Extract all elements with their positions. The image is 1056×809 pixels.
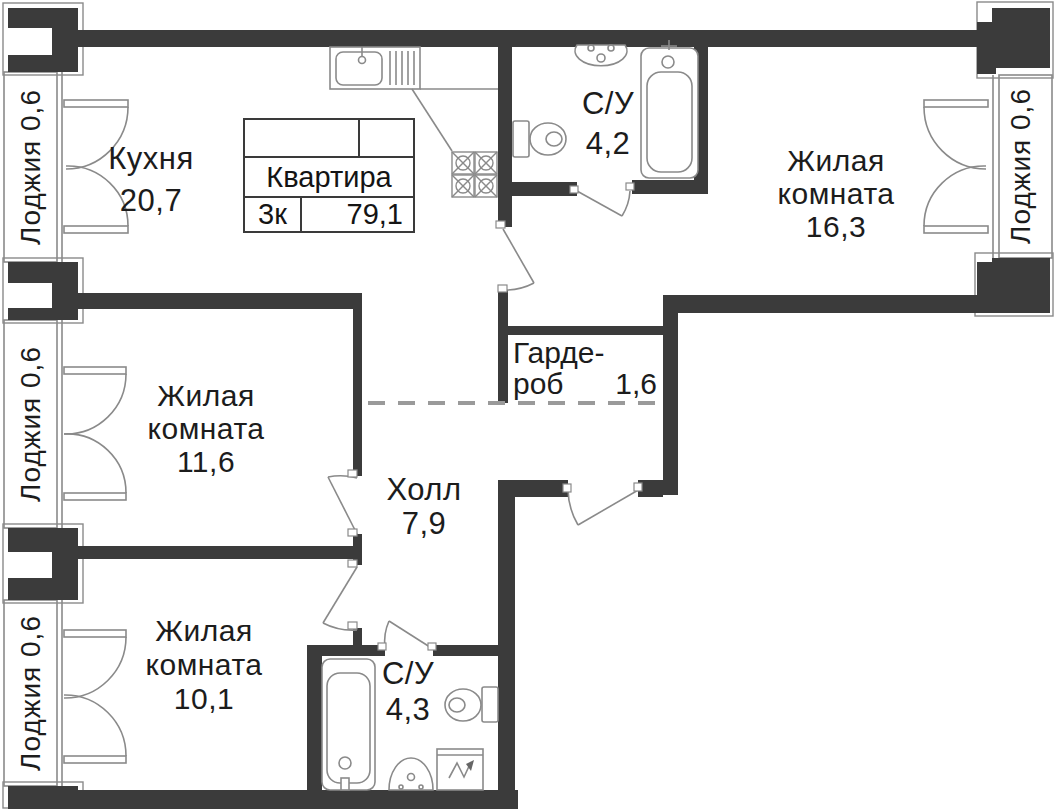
- info-table-bottom-row: 3к 79,1: [245, 198, 413, 231]
- wardrobe-area: 1,6: [615, 368, 657, 399]
- stove-icon: [452, 152, 497, 197]
- floor-plan-page: Квартира 3к 79,1 Кухня 20,7 С/У 4,2 Жила…: [0, 0, 1056, 809]
- room-label-bathroom-top: С/У 4,2: [582, 84, 634, 164]
- bathroom-bottom-area: 4,3: [382, 692, 434, 728]
- apartment-rooms-count: 3к: [245, 198, 302, 231]
- door-hinges: [348, 183, 642, 650]
- apartment-info-table: Квартира 3к 79,1: [243, 118, 415, 233]
- loggia-label-right: Лоджия 0,6: [1005, 88, 1037, 244]
- room-label-wardrobe: Гарде- роб 1,6: [513, 337, 657, 399]
- hall-name: Холл: [386, 473, 461, 507]
- living-bottom-name-1: Жилая: [146, 614, 263, 648]
- living-middle-name-1: Жилая: [148, 379, 265, 412]
- bathroom-top-area: 4,2: [582, 124, 634, 164]
- apartment-title: Квартира: [245, 158, 413, 198]
- interior-doors: [323, 191, 640, 649]
- loggia-label-top-left: Лоджия 0,6: [15, 89, 47, 245]
- bathroom-top-name: С/У: [582, 84, 634, 124]
- wardrobe-name-2: роб: [513, 368, 564, 399]
- room-label-living-right: Жилая комната 16,3: [778, 144, 895, 243]
- loggia-label-bottom-left: Лоджия 0,6: [15, 615, 47, 771]
- info-table-empty-cell-right: [360, 120, 413, 156]
- living-right-name-2: комната: [778, 177, 895, 210]
- info-table-empty-cell-left: [245, 120, 360, 156]
- room-label-bathroom-bottom: С/У 4,3: [382, 656, 434, 728]
- living-right-area: 16,3: [778, 210, 895, 243]
- living-bottom-name-2: комната: [146, 648, 263, 682]
- living-right-name-1: Жилая: [778, 144, 895, 177]
- hall-area: 7,9: [386, 507, 461, 541]
- loggia-label-middle-left: Лоджия 0,6: [15, 346, 47, 502]
- kitchen-name: Кухня: [108, 138, 193, 180]
- bathroom-bottom-name: С/У: [382, 656, 434, 692]
- info-table-top-row: [245, 120, 413, 158]
- room-label-living-middle: Жилая комната 11,6: [148, 379, 265, 478]
- apartment-total-area: 79,1: [302, 198, 413, 231]
- wardrobe-name-1: Гарде-: [513, 337, 657, 368]
- kitchen-area: 20,7: [108, 180, 193, 222]
- living-middle-area: 11,6: [148, 445, 265, 478]
- living-middle-name-2: комната: [148, 412, 265, 445]
- room-label-kitchen: Кухня 20,7: [108, 138, 193, 222]
- room-label-hall: Холл 7,9: [386, 473, 461, 541]
- room-label-living-bottom: Жилая комната 10,1: [146, 614, 263, 716]
- living-bottom-area: 10,1: [146, 682, 263, 716]
